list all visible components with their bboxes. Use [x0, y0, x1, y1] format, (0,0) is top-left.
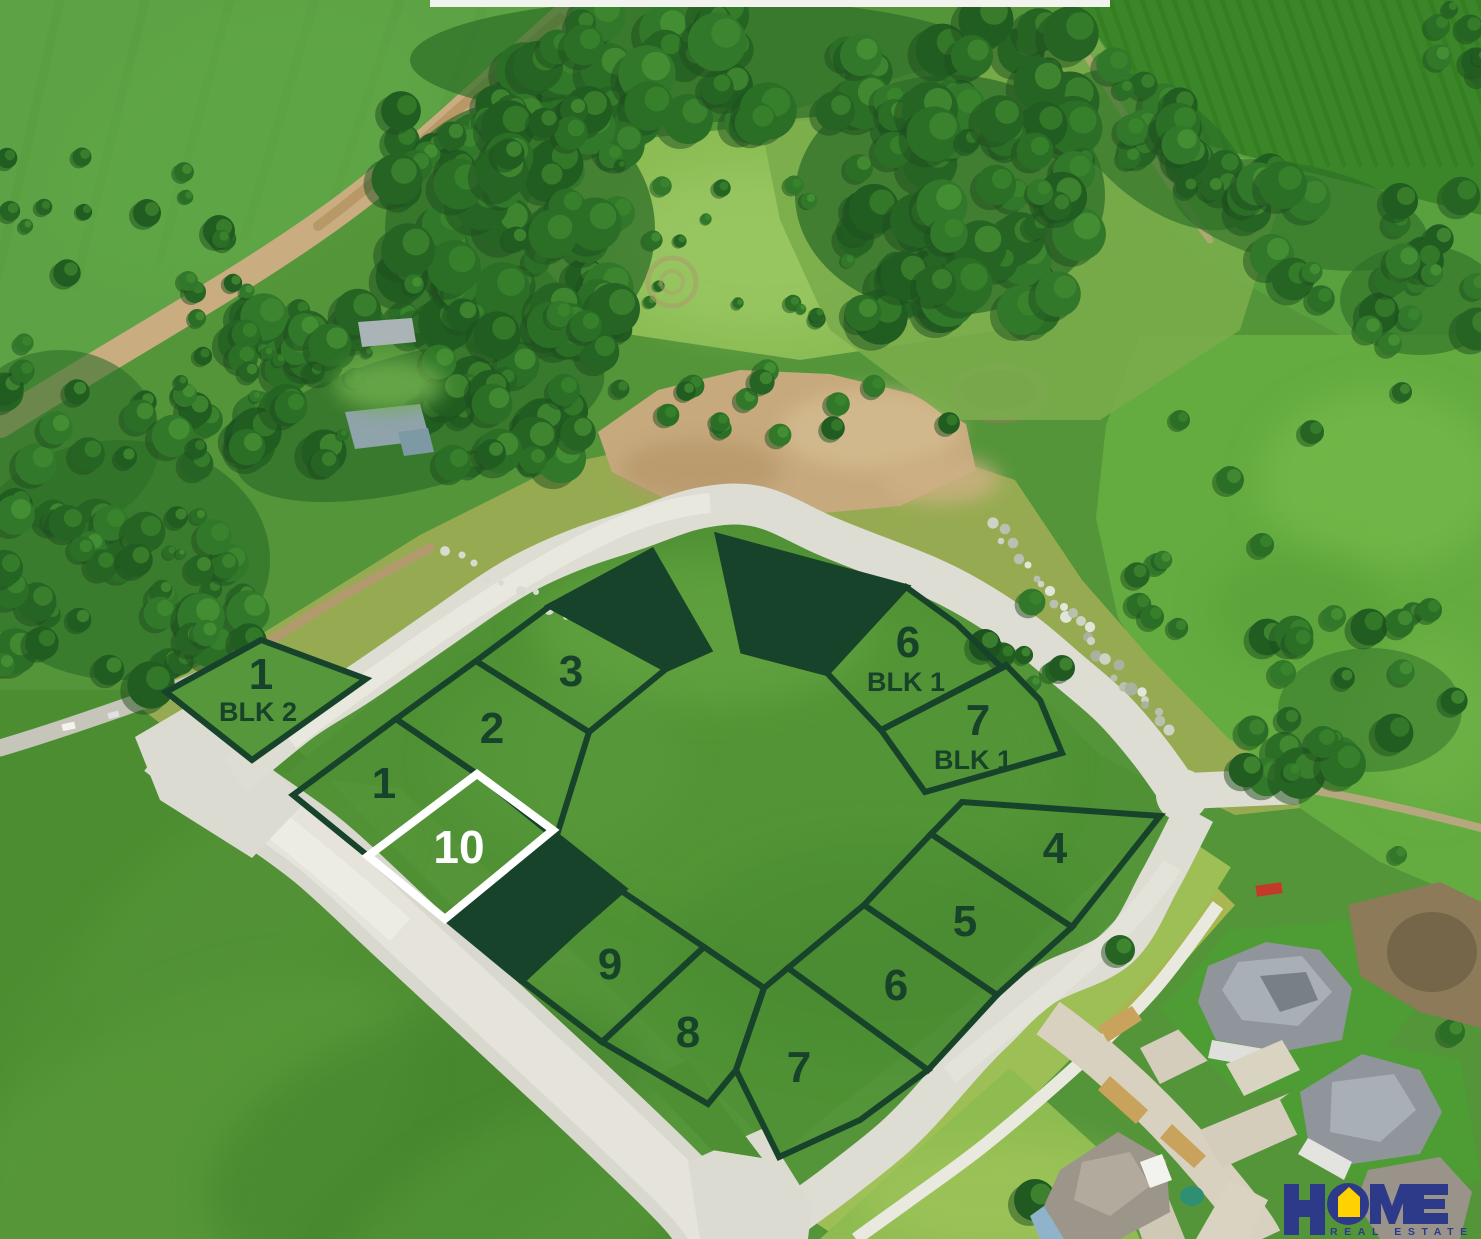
svg-text:7: 7: [966, 696, 990, 745]
svg-text:BLK 1: BLK 1: [867, 667, 945, 697]
svg-text:2: 2: [480, 704, 504, 753]
svg-text:9: 9: [598, 940, 622, 989]
svg-text:5: 5: [953, 897, 977, 946]
svg-text:4: 4: [1043, 824, 1068, 873]
svg-text:REAL ESTATE: REAL ESTATE: [1330, 1226, 1474, 1238]
svg-text:3: 3: [559, 647, 583, 696]
svg-text:1: 1: [249, 650, 273, 699]
svg-text:7: 7: [787, 1043, 811, 1092]
svg-text:1: 1: [372, 759, 396, 808]
svg-text:10: 10: [433, 821, 484, 873]
svg-text:6: 6: [884, 961, 908, 1010]
svg-text:BLK 1: BLK 1: [934, 745, 1012, 775]
svg-text:8: 8: [676, 1008, 700, 1057]
svg-text:6: 6: [896, 618, 920, 667]
svg-text:BLK 2: BLK 2: [219, 697, 297, 727]
